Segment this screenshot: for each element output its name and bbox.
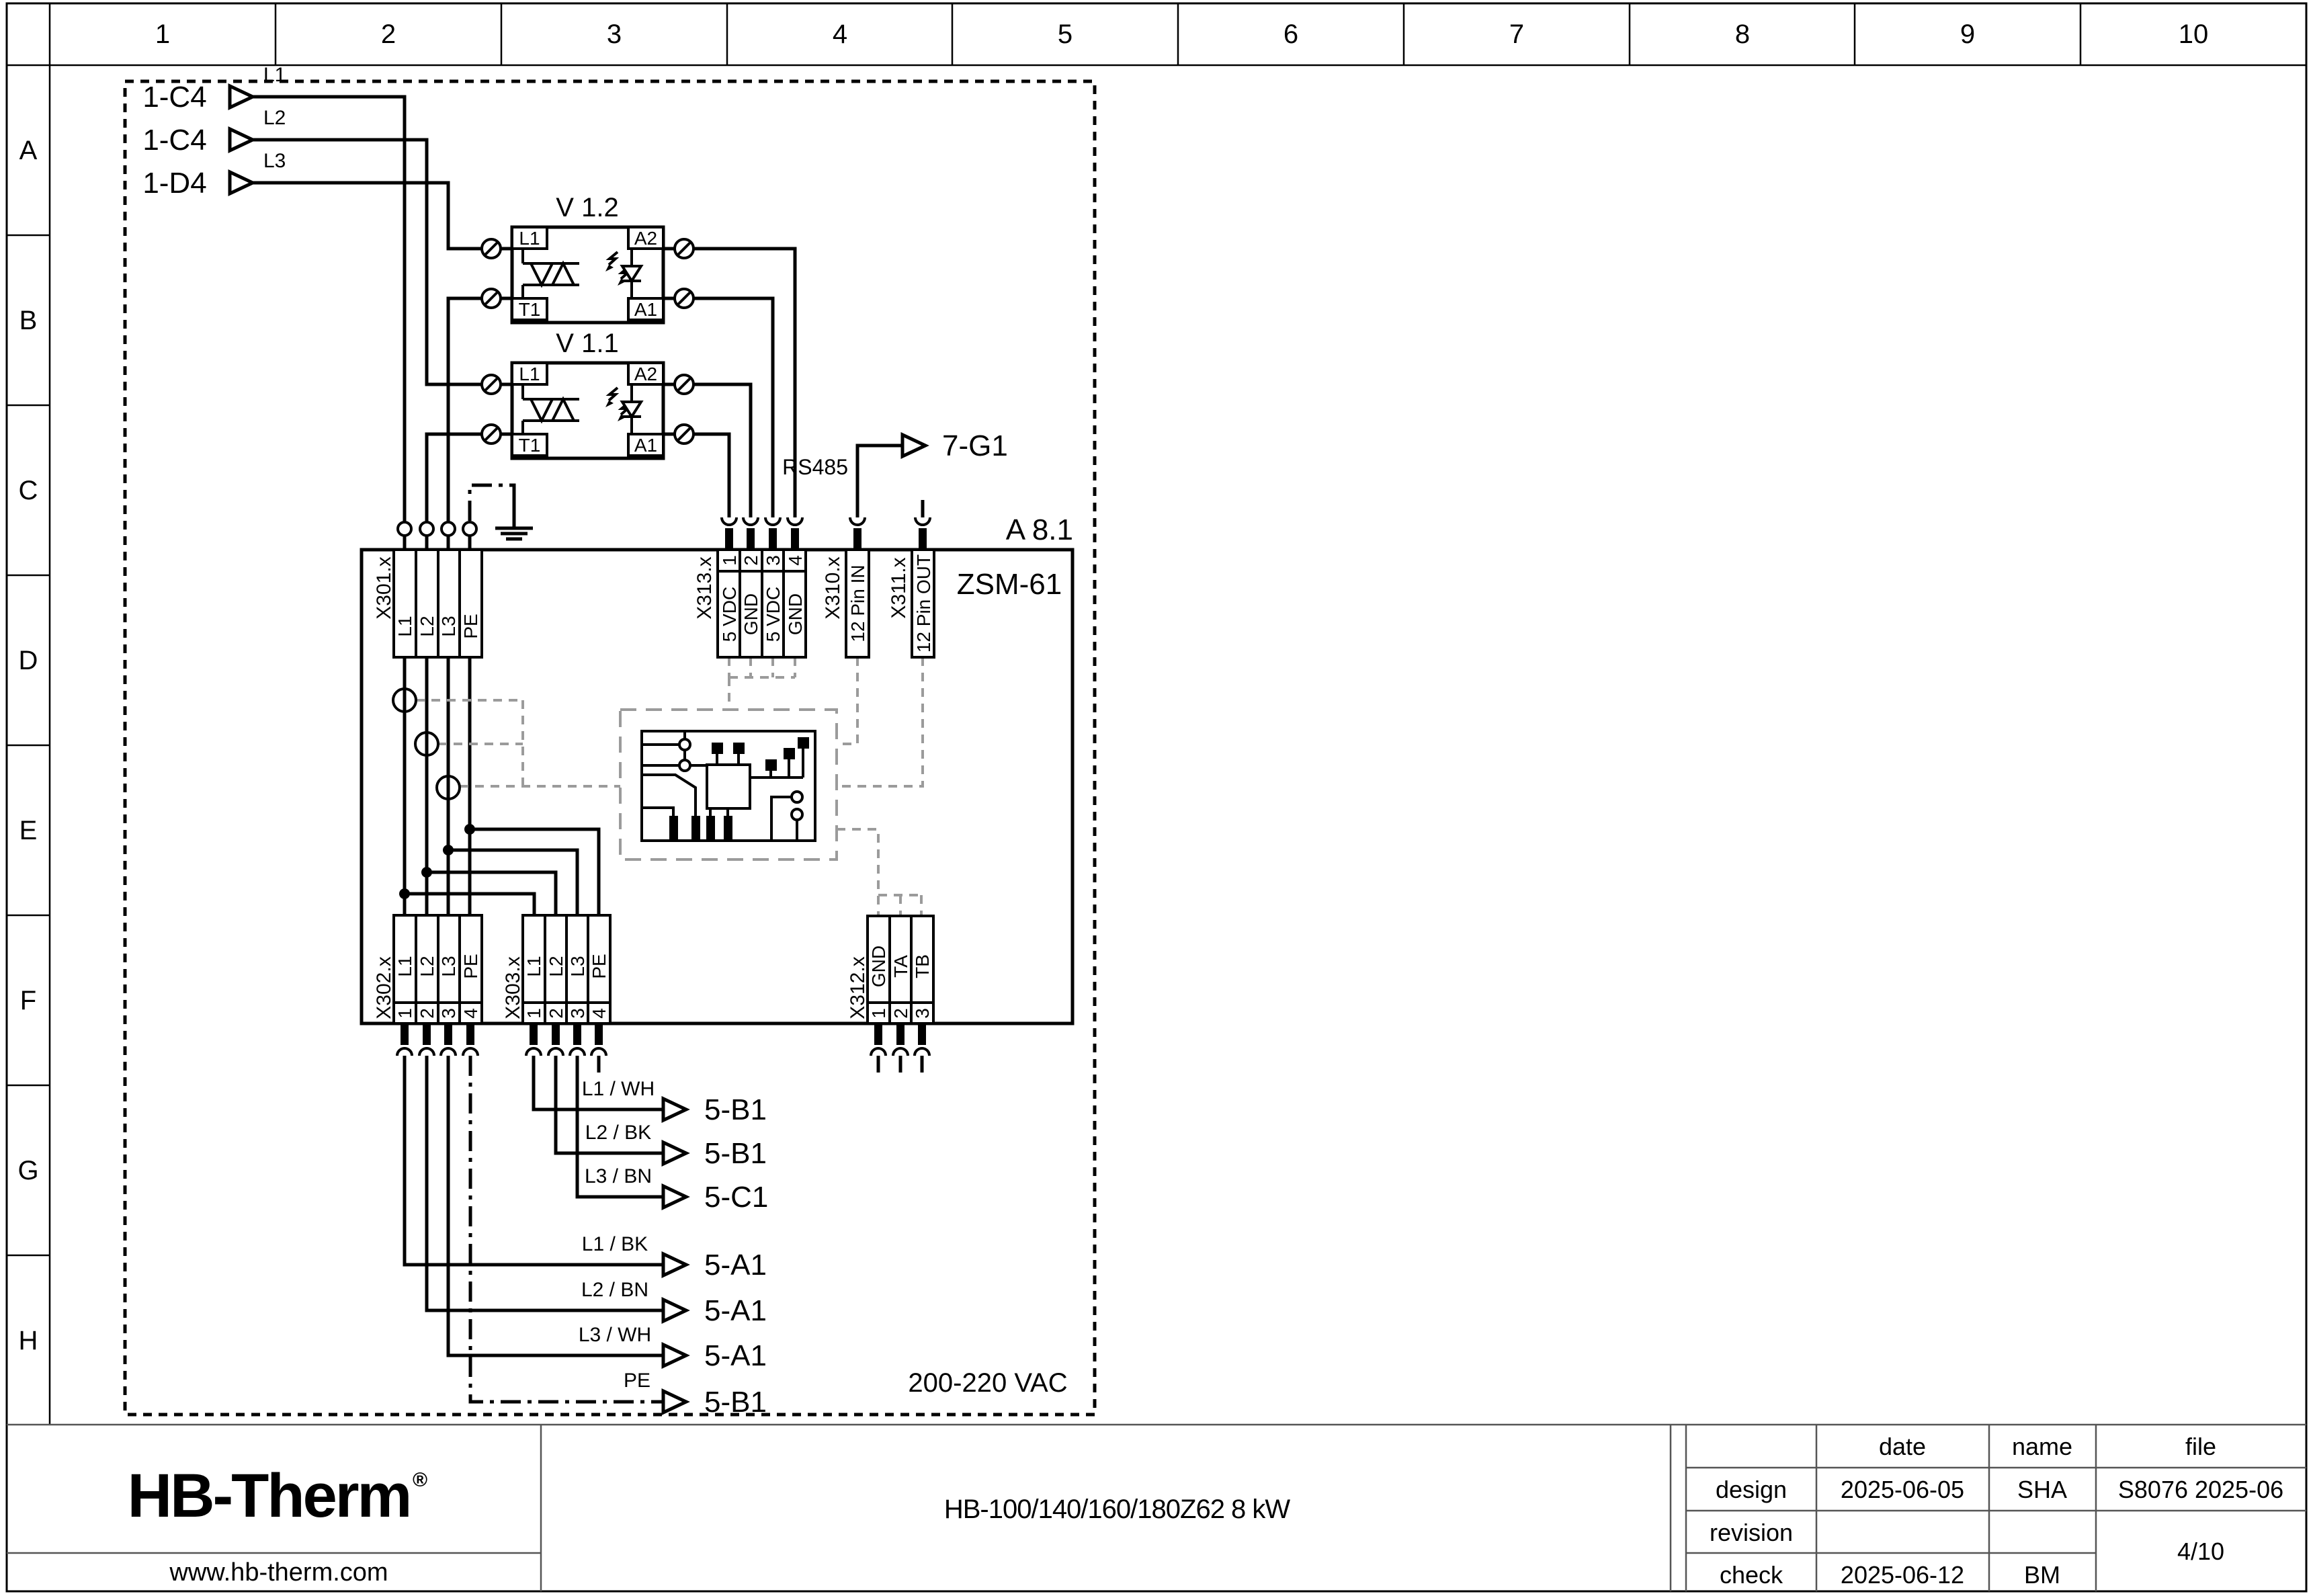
junction-dots: [399, 824, 475, 899]
ruler-labels: 1 2 3 4 5 6 7 8 9 10 A B C D E F G H: [17, 19, 2208, 1355]
ruler-col: 5: [1058, 19, 1073, 49]
cell-label: TA: [890, 955, 911, 978]
cell-number: 3: [763, 555, 784, 566]
pin-label: A1: [634, 435, 657, 456]
output-arrow-icon: [902, 435, 925, 456]
ssr-v12: V 1.2 L1 A2 T1 A1: [512, 193, 663, 323]
pin-label: A1: [634, 299, 657, 320]
block-label: X313.x: [693, 556, 716, 619]
ruler-row: F: [20, 986, 36, 1015]
cell-number: 3: [567, 1008, 588, 1019]
row-label-design: design: [1716, 1476, 1787, 1503]
block-label: X301.x: [373, 556, 395, 619]
phase-label: L3: [263, 150, 286, 172]
cell-label: 5 VDC: [719, 587, 740, 642]
input-connectors: 1-C4 1-C4 1-D4 L1 L2 L3: [142, 64, 286, 200]
cell-label: L2: [417, 616, 437, 636]
output-tag: 5-B1: [704, 1386, 767, 1419]
terminal-block-x310: X310.x 12 Pin IN: [822, 550, 869, 657]
ruler-row: G: [17, 1156, 38, 1185]
cell-label: L2: [546, 956, 566, 976]
output-tag: 5-B1: [704, 1137, 767, 1170]
input-arrow-icon: [230, 129, 253, 151]
wire-label: L1 / BK: [582, 1233, 648, 1255]
website: www.hb-therm.com: [169, 1558, 388, 1587]
terminal-block-x312: X312.x GND TA TB 1 2 3: [847, 916, 933, 1023]
ruler-col: 4: [833, 19, 847, 49]
cell-number: 4: [589, 1008, 609, 1019]
module-ref: A 8.1: [1006, 513, 1073, 546]
cell-number: 1: [868, 1008, 889, 1019]
cell-label: 5 VDC: [763, 587, 784, 642]
terminal-block-x302: X302.x L1 L2 L3 PE 1 2 3 4: [373, 915, 482, 1023]
ruler-row: A: [19, 136, 38, 165]
ruler-col: 6: [1284, 19, 1298, 49]
block-label: X303.x: [502, 956, 524, 1019]
ssr-v11: V 1.1 L1 A2 T1 A1: [512, 329, 663, 458]
ruler-row: D: [19, 646, 38, 675]
module-name: ZSM-61: [957, 568, 1062, 601]
col-header-name: name: [2012, 1433, 2072, 1460]
pin-label: T1: [519, 299, 541, 320]
row-label-check: check: [1720, 1561, 1783, 1589]
cell-number: 2: [741, 555, 761, 566]
cell-number: 3: [438, 1008, 459, 1019]
wire-label: PE: [624, 1370, 650, 1392]
input-tag: 1-D4: [142, 167, 206, 200]
cell-label: L1: [394, 956, 415, 976]
cell-label: L2: [417, 956, 437, 976]
check-date: 2025-06-12: [1841, 1561, 1964, 1589]
cell-label: L1: [394, 616, 415, 636]
ruler-col: 3: [607, 19, 622, 49]
ruler-row: B: [19, 306, 38, 335]
terminal-block-x303: X303.x L1 L2 L3 PE 1 2 3 4: [502, 915, 610, 1023]
wire-label: L3 / WH: [579, 1324, 651, 1346]
file-number: S8076 2025-06: [2118, 1476, 2283, 1503]
pin-label: L1: [519, 228, 540, 249]
output-connectors-g: 5-B1 5-B1 5-C1 L1 / WH L2 / BK L3 / BN: [582, 1078, 769, 1214]
cell-number: 1: [719, 555, 740, 566]
drawing-title: HB-100/140/160/180Z62 8 kW: [944, 1495, 1291, 1524]
input-tag: 1-C4: [142, 124, 206, 157]
cell-label: PE: [460, 614, 481, 638]
schematic-sheet: 1 2 3 4 5 6 7 8 9 10 A B C D E F G H: [0, 0, 2313, 1596]
terminal-block-x301: X301.x L1 L2 L3 PE: [373, 550, 482, 657]
block-label: X310.x: [822, 556, 844, 619]
cell-label: GND: [868, 946, 889, 987]
output-tag: 5-A1: [704, 1294, 767, 1327]
bus-label: RS485: [782, 455, 848, 479]
output-tag: 5-B1: [704, 1093, 767, 1126]
block-label: X302.x: [373, 956, 395, 1019]
wire-label: L1 / WH: [582, 1078, 655, 1100]
cell-number: 4: [460, 1008, 481, 1019]
block-label: X312.x: [847, 956, 869, 1019]
cell-number: 3: [912, 1008, 933, 1019]
rs485-connector: 7-G1 RS485: [782, 429, 1008, 479]
pcb-graphic: [620, 710, 837, 859]
socket-icons: [398, 522, 476, 536]
title-block: HB-Therm ® www.hb-therm.com HB-100/140/1…: [7, 1425, 2306, 1591]
cell-label: 12 Pin IN: [847, 564, 868, 642]
terminal-block-x313: X313.x 1 2 3 4 5 VDC GND 5 VDC GND: [693, 550, 806, 657]
pin-label: A2: [634, 364, 657, 384]
cell-label: L3: [438, 956, 459, 976]
ruler-col: 9: [1960, 19, 1975, 49]
logo-registered-icon: ®: [413, 1469, 427, 1491]
cell-label: 12 Pin OUT: [913, 554, 934, 653]
output-tag: 5-A1: [704, 1339, 767, 1372]
ruler-row: C: [19, 476, 38, 505]
wire-label: L2 / BN: [581, 1279, 648, 1301]
pin-label: T1: [519, 435, 541, 456]
output-tag: 5-C1: [704, 1181, 768, 1214]
terminal-block-x311: X311.x 12 Pin OUT: [888, 550, 934, 657]
wire-label: L2 / BK: [585, 1122, 651, 1144]
cell-label: PE: [460, 954, 481, 978]
page-number: 4/10: [2177, 1538, 2224, 1565]
design-name: SHA: [2017, 1476, 2067, 1503]
block-label: X311.x: [888, 557, 910, 618]
plug-icons-top: [722, 517, 930, 550]
phase-label: L2: [263, 107, 286, 129]
output-connectors-h: 5-A1 5-A1 5-A1 5-B1 L1 / BK L2 / BN L3 /…: [579, 1233, 767, 1419]
cell-label: L1: [523, 956, 544, 976]
ruler-col: 8: [1735, 19, 1750, 49]
cell-label: GND: [785, 593, 806, 635]
ruler-col: 7: [1509, 19, 1524, 49]
cell-number: 2: [417, 1008, 437, 1019]
logo: HB-Therm: [128, 1462, 411, 1530]
cell-number: 1: [523, 1008, 544, 1019]
phase-label: L1: [263, 64, 286, 86]
ssr-title: V 1.2: [556, 193, 618, 222]
plug-icons-bottom: [397, 1023, 929, 1056]
input-arrow-icon: [230, 172, 253, 194]
output-tag: 5-A1: [704, 1249, 767, 1282]
cell-label: GND: [741, 593, 761, 635]
check-name: BM: [2024, 1561, 2060, 1589]
module-voltage: 200-220 VAC: [908, 1368, 1067, 1398]
cell-number: 2: [546, 1008, 566, 1019]
sheet-frame: [7, 3, 2306, 1591]
cell-label: TB: [912, 954, 933, 978]
col-header-date: date: [1879, 1433, 1926, 1460]
ssr-title: V 1.1: [556, 329, 618, 358]
ruler-row: H: [19, 1326, 38, 1355]
cell-label: PE: [589, 954, 609, 978]
design-date: 2025-06-05: [1841, 1476, 1964, 1503]
input-arrow-icon: [230, 86, 253, 108]
output-tag: 7-G1: [942, 429, 1008, 462]
cell-number: 4: [785, 555, 806, 566]
pin-label: A2: [634, 228, 657, 249]
wire-label: L3 / BN: [585, 1165, 652, 1187]
row-label-revision: revision: [1710, 1519, 1793, 1546]
cell-number: 1: [394, 1008, 415, 1019]
col-header-file: file: [2185, 1433, 2216, 1460]
pin-label: L1: [519, 364, 540, 384]
ruler-row: E: [19, 816, 38, 845]
cell-label: L3: [567, 956, 588, 976]
cell-label: L3: [438, 616, 459, 636]
ruler-col: 1: [155, 19, 170, 49]
ruler-col: 2: [381, 19, 396, 49]
ruler-col: 10: [2179, 19, 2209, 49]
cell-number: 2: [890, 1008, 911, 1019]
input-tag: 1-C4: [142, 81, 206, 114]
